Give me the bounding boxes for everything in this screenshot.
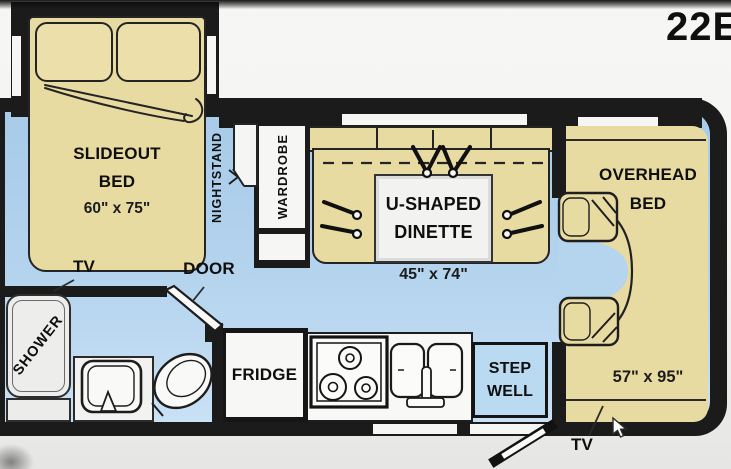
overhead-bed-line2: BED	[630, 194, 667, 213]
entry-door-opening	[470, 424, 547, 434]
model-number: 22E	[666, 6, 731, 58]
tv-front-label: TV	[560, 436, 604, 454]
dinette-line2: DINETTE	[394, 222, 472, 242]
door-label: DOOR	[172, 260, 246, 278]
wardrobe-label: WARDROBE	[275, 134, 290, 219]
dinette-line1: U-SHAPED	[386, 194, 482, 214]
cab-partition-wall-bottom	[552, 342, 566, 424]
overhead-bed-front-line	[566, 139, 706, 141]
window-over-dinette	[342, 114, 527, 125]
galley-counter	[306, 332, 473, 422]
step-well: STEP WELL	[472, 342, 548, 418]
bath-sink-counter	[73, 356, 154, 422]
cabinet-below-wardrobe	[259, 234, 305, 260]
overhead-bed-dims: 57" x 95"	[578, 368, 718, 387]
step-well-line2: WELL	[487, 383, 533, 400]
overhead-bed-label: OVERHEAD BED	[578, 161, 718, 219]
slideout-window-left	[12, 36, 21, 96]
nightstand-label-wrap: NIGHTSTAND	[208, 124, 226, 232]
step-well-line1: STEP	[489, 360, 532, 377]
bathroom-right-wall	[212, 323, 223, 422]
overhead-bed-line1: OVERHEAD	[599, 165, 697, 184]
tv-rear-label: TV	[62, 258, 106, 276]
slideout-bed-dims: 60" x 75"	[28, 200, 206, 218]
nightstand-label: NIGHTSTAND	[210, 132, 224, 223]
photo-corner-shadow	[0, 444, 34, 469]
slideout-bed-line2: BED	[99, 172, 136, 191]
pillow-left	[35, 22, 113, 82]
overhead-bed-rear-line	[566, 399, 706, 401]
slideout-bed-line1: SLIDEOUT	[73, 144, 161, 163]
slideout-window-right	[207, 36, 216, 94]
shower-cabinet	[6, 398, 71, 422]
galley-window	[373, 424, 457, 434]
slideout-bed-label: SLIDEOUT BED 60" x 75"	[28, 140, 206, 218]
fridge: FRIDGE	[221, 328, 308, 422]
dinette-table: U-SHAPED DINETTE	[374, 174, 493, 263]
shower: SHOWER	[6, 294, 71, 398]
wardrobe: WARDROBE	[259, 126, 305, 228]
fridge-label: FRIDGE	[232, 366, 297, 384]
floorplan-photo: SLIDEOUT BED 60" x 75" OVERHEAD BED 57" …	[0, 0, 731, 469]
cab-partition-wall-top	[552, 126, 566, 198]
dinette-dims: 45" x 74"	[374, 266, 493, 284]
pillow-right	[116, 22, 201, 82]
